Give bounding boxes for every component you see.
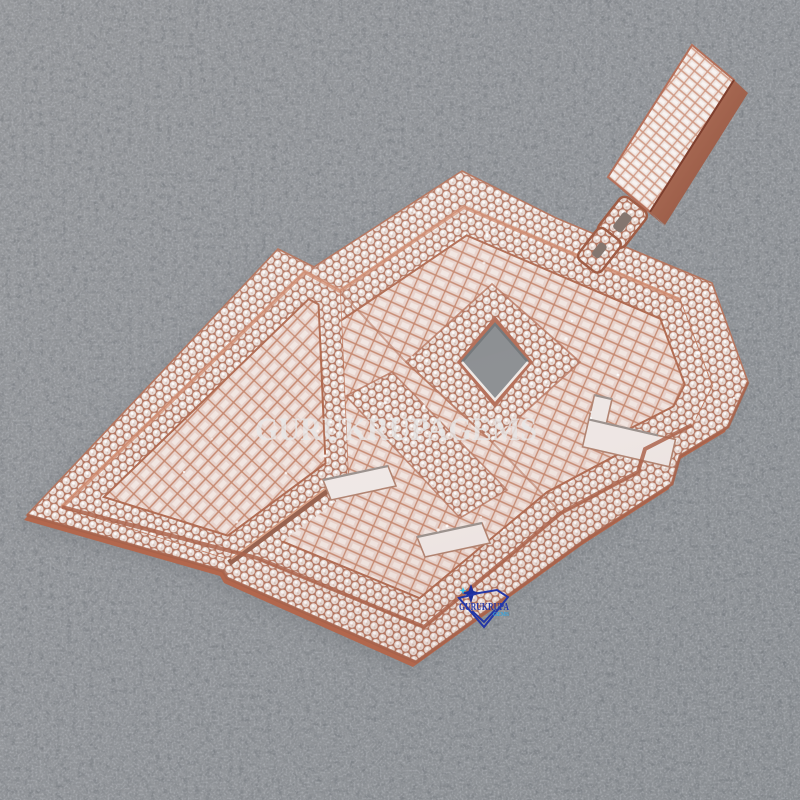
svg-text:GEMS: GEMS — [493, 612, 510, 618]
svg-text:GURUKRUPAGEMS: GURUKRUPAGEMS — [255, 412, 537, 448]
